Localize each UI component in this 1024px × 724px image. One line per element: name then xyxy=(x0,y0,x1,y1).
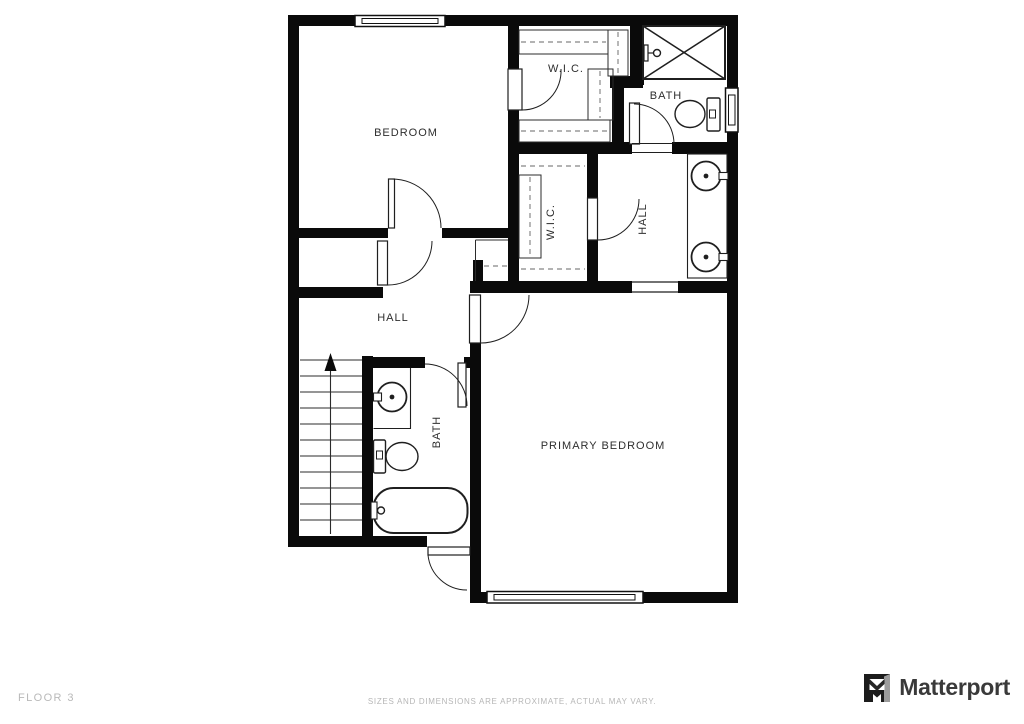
sink-pedestal xyxy=(374,368,411,429)
bathtub xyxy=(371,488,468,533)
matterport-m-icon xyxy=(863,672,891,702)
door-bath-left xyxy=(425,363,467,407)
door-primary-bedroom xyxy=(470,295,530,343)
door-bath-top xyxy=(630,103,675,153)
window-bath-right xyxy=(726,88,739,132)
stairs-up xyxy=(300,353,362,534)
label-wic-top: W.I.C. xyxy=(548,63,584,75)
door-exterior-bottom xyxy=(427,536,470,590)
door-wic-middle xyxy=(588,198,640,240)
floorplan-page: BEDROOM W.I.C. BATH W.I.C. HALL HALL BAT… xyxy=(0,0,1024,724)
label-wic-middle: W.I.C. xyxy=(545,204,557,240)
label-bath-top: BATH xyxy=(650,90,683,102)
label-hall-left: HALL xyxy=(377,312,409,324)
toilet-bottom xyxy=(374,440,419,473)
label-bath-left: BATH xyxy=(431,416,443,449)
door-bedroom xyxy=(389,179,442,228)
door-wic-top xyxy=(508,69,561,110)
matterport-wordmark: Matterport xyxy=(899,674,1010,701)
window-bedroom-top xyxy=(355,16,445,27)
matterport-logo: Matterport xyxy=(863,672,1010,702)
shower xyxy=(643,26,725,79)
label-hall-right: HALL xyxy=(637,203,649,235)
toilet-top xyxy=(675,98,720,131)
stairs-direction-arrow-icon xyxy=(325,353,337,371)
label-primary-bedroom: PRIMARY BEDROOM xyxy=(541,440,666,452)
vanity-double-sink xyxy=(688,154,729,278)
opening-hall-primary xyxy=(632,282,678,292)
label-bedroom: BEDROOM xyxy=(374,127,438,139)
floorplan-drawing: BEDROOM W.I.C. BATH W.I.C. HALL HALL BAT… xyxy=(0,0,1024,724)
door-hall-closet xyxy=(378,241,433,285)
window-primary-bottom xyxy=(487,592,643,604)
